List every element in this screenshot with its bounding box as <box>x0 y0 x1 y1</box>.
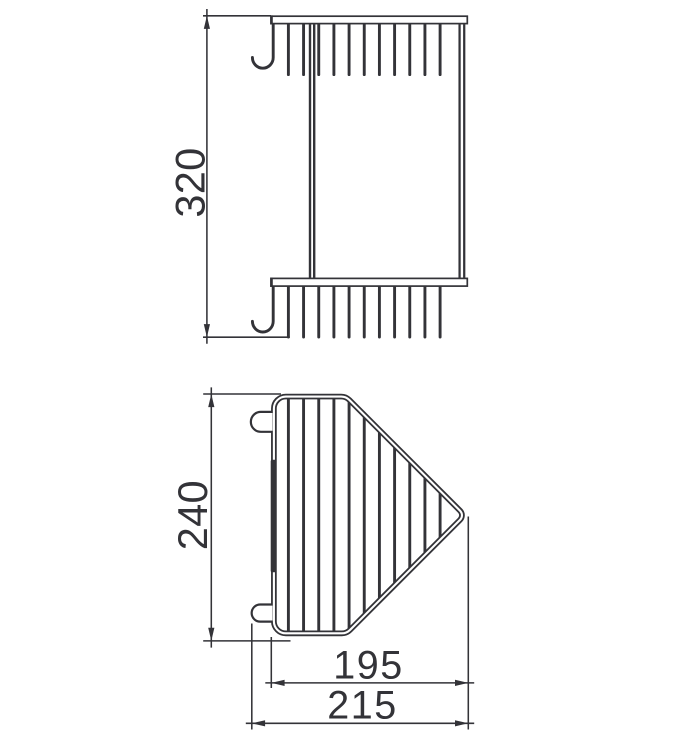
svg-text:320: 320 <box>167 147 214 217</box>
svg-text:195: 195 <box>333 643 403 687</box>
svg-text:215: 215 <box>327 683 397 727</box>
svg-text:240: 240 <box>169 480 216 550</box>
